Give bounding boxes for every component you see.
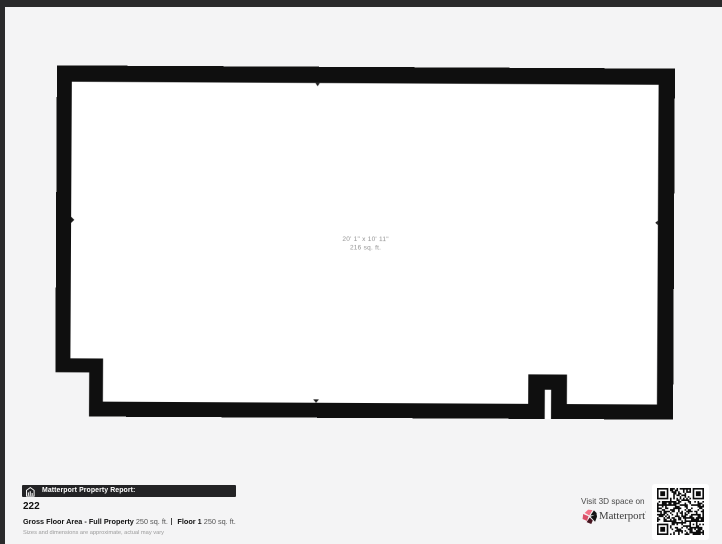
svg-text:20' 1" x 10' 11": 20' 1" x 10' 11": [343, 236, 390, 243]
svg-text:216 sq. ft.: 216 sq. ft.: [350, 244, 381, 251]
